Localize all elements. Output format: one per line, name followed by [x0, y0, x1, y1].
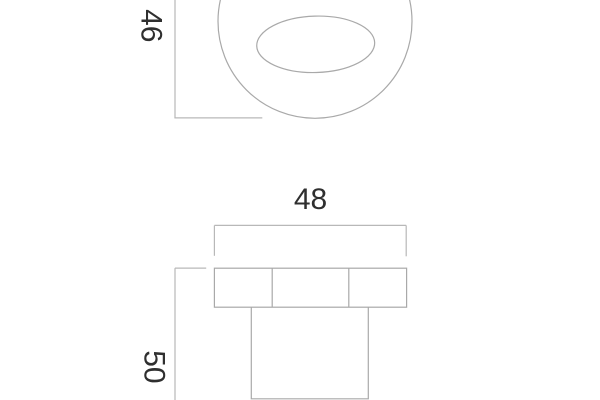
svg-text:46: 46	[135, 9, 168, 42]
svg-text:50: 50	[138, 350, 171, 383]
svg-text:48: 48	[294, 183, 327, 216]
